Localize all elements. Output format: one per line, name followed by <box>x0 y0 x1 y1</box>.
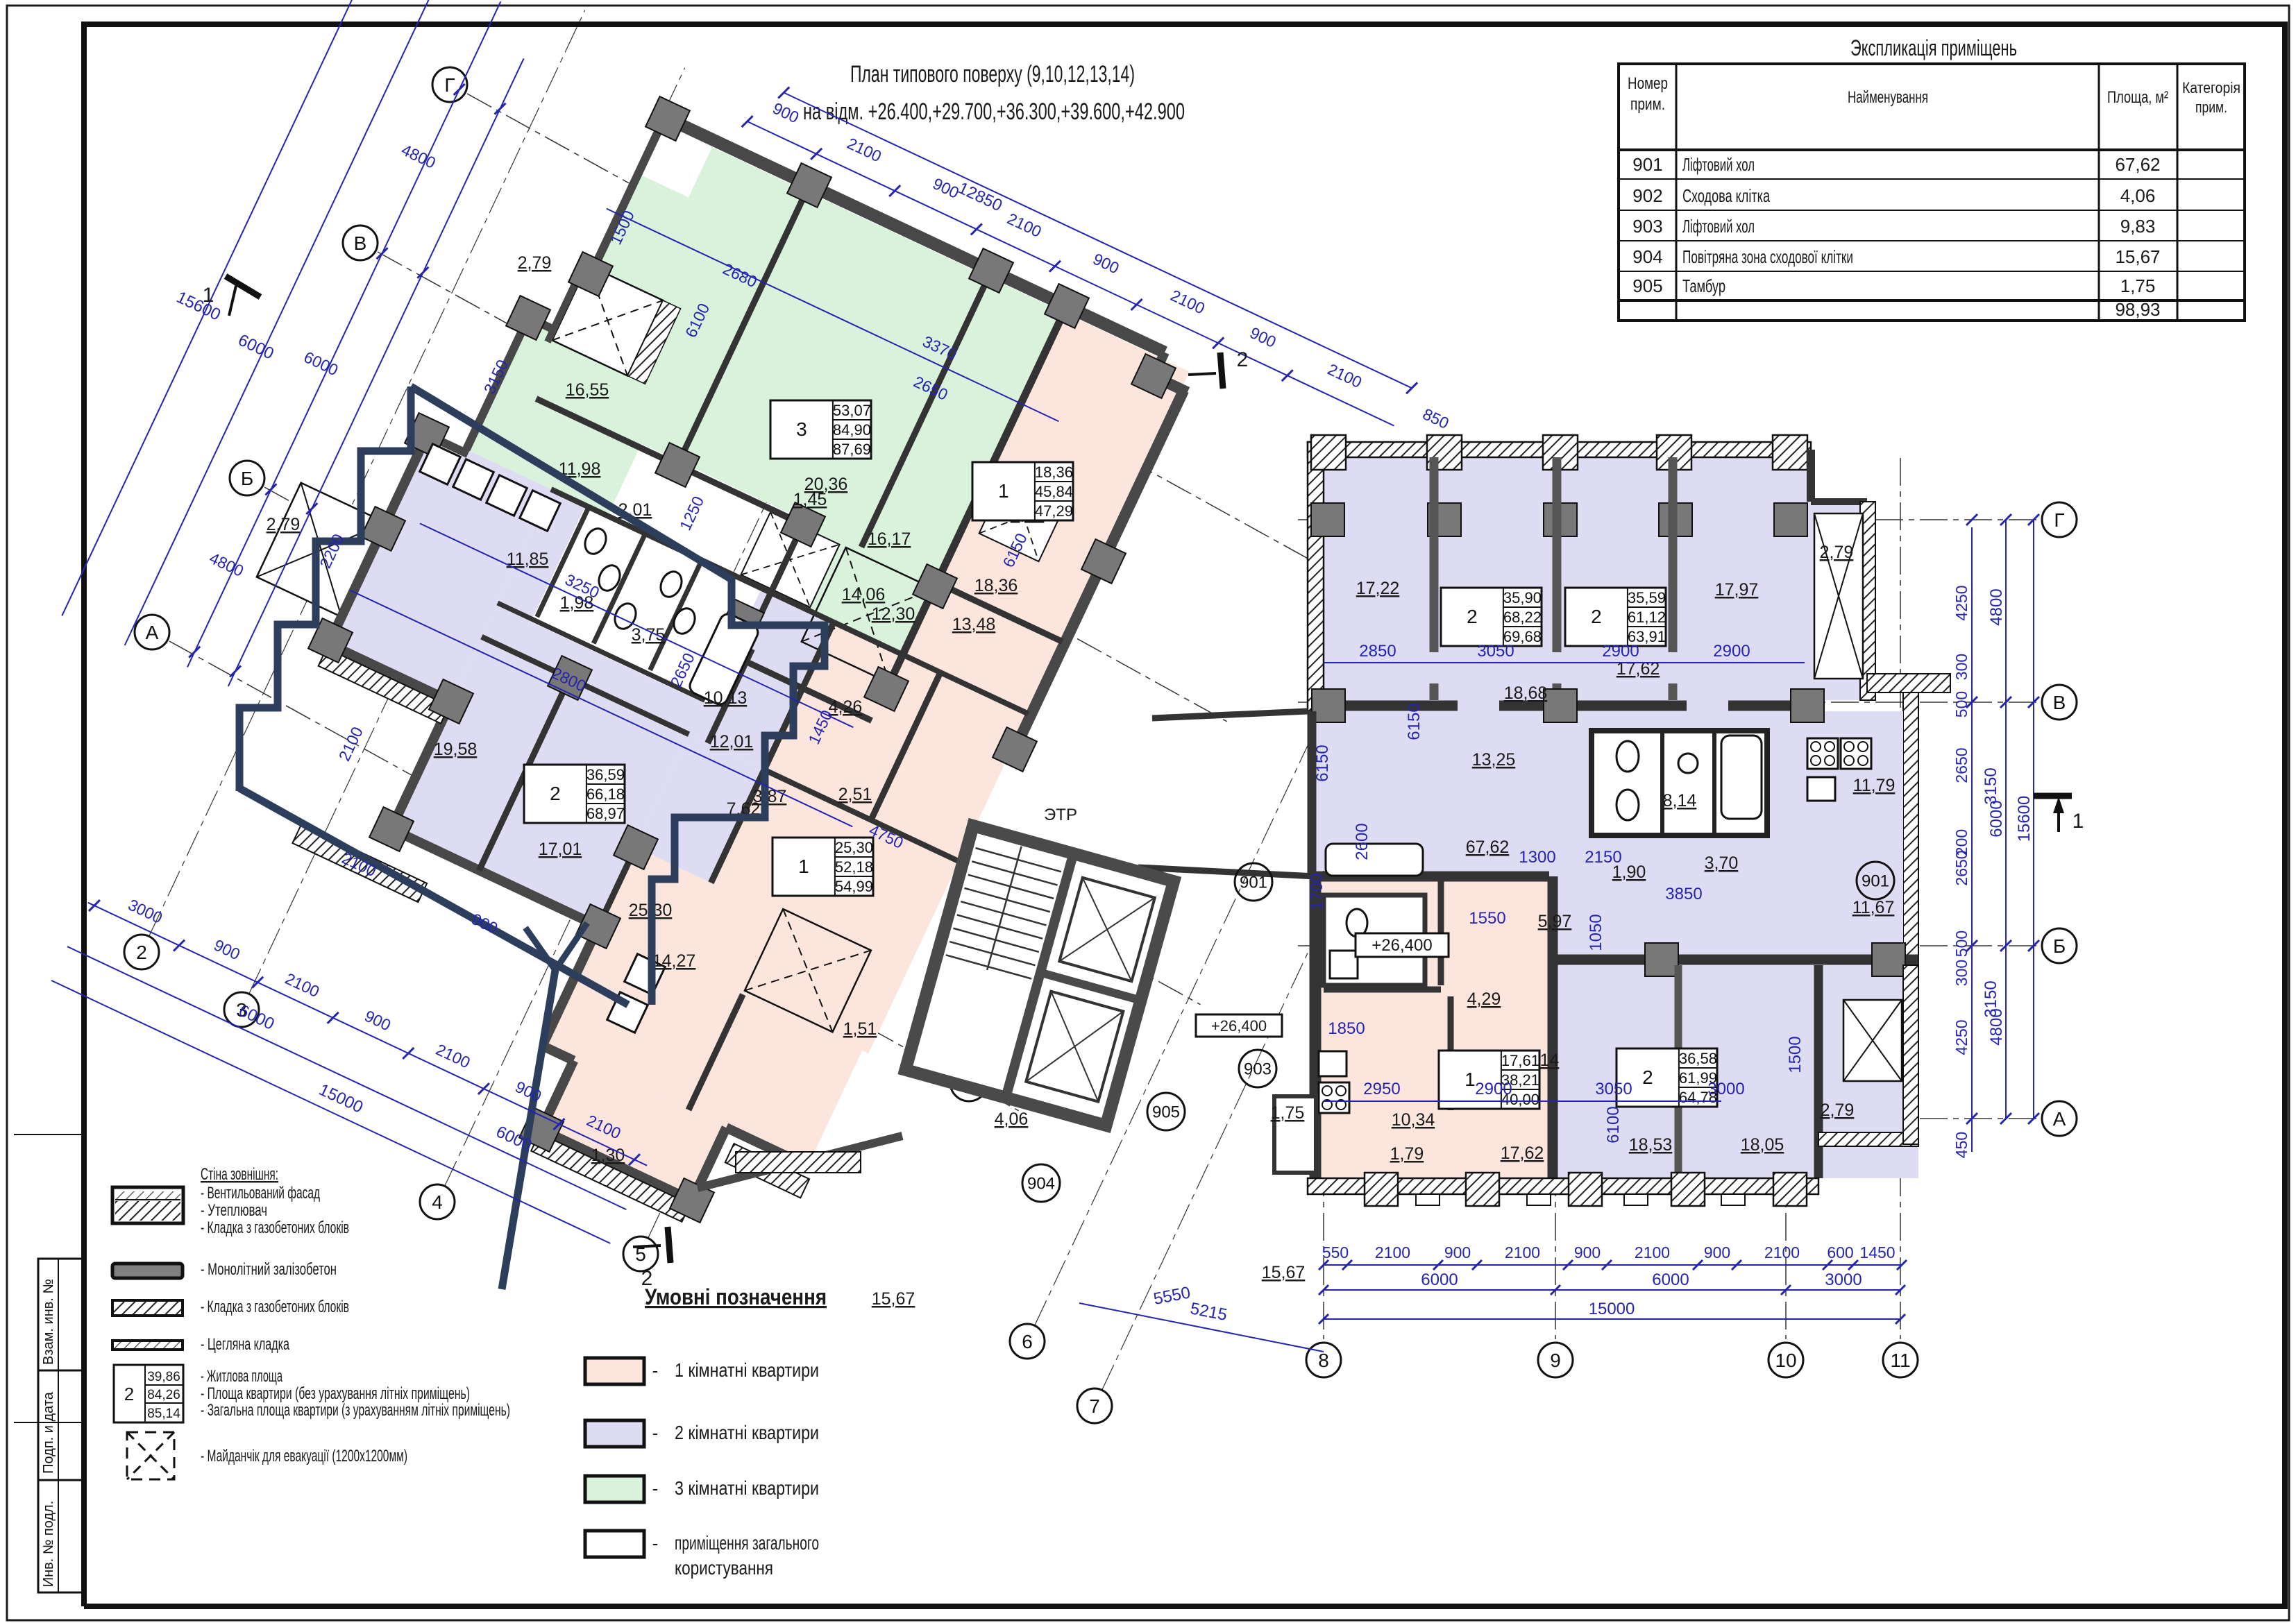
svg-text:4250: 4250 <box>1952 585 1970 620</box>
svg-text:4,29: 4,29 <box>1467 989 1501 1009</box>
svg-text:2900: 2900 <box>1475 1080 1512 1098</box>
svg-text:2: 2 <box>124 1384 134 1404</box>
svg-text:900: 900 <box>1444 1243 1471 1261</box>
svg-text:1700: 1700 <box>1308 873 1326 910</box>
svg-text:приміщення загального: приміщення загального <box>675 1532 819 1554</box>
svg-text:2900: 2900 <box>1602 642 1639 661</box>
svg-text:18,68: 18,68 <box>1504 683 1548 703</box>
svg-text:3000: 3000 <box>1707 1080 1744 1098</box>
svg-text:16,17: 16,17 <box>868 529 911 549</box>
svg-text:2100: 2100 <box>1505 1243 1540 1261</box>
svg-text:+26,400: +26,400 <box>1371 936 1432 955</box>
svg-text:- Загальна площа квартири (з у: - Загальна площа квартири (з урахуванням… <box>201 1401 510 1420</box>
svg-text:14,27: 14,27 <box>652 951 696 971</box>
svg-text:4250: 4250 <box>1952 1019 1970 1055</box>
svg-text:15,67: 15,67 <box>872 1289 915 1309</box>
svg-text:1,51: 1,51 <box>843 1019 877 1039</box>
svg-text:Номер: Номер <box>1628 74 1668 93</box>
svg-text:900: 900 <box>1574 1243 1601 1261</box>
svg-text:25,30: 25,30 <box>835 839 873 856</box>
svg-text:67,62: 67,62 <box>1466 838 1510 857</box>
svg-text:Площа, м²: Площа, м² <box>2107 88 2168 107</box>
svg-text:2100: 2100 <box>1375 1243 1410 1261</box>
svg-text:901: 901 <box>1240 873 1267 892</box>
svg-text:Б: Б <box>241 468 253 489</box>
svg-text:17,62: 17,62 <box>1501 1144 1544 1163</box>
svg-text:2100: 2100 <box>1635 1243 1670 1261</box>
svg-text:10: 10 <box>1775 1350 1796 1371</box>
svg-text:900: 900 <box>1704 1243 1730 1261</box>
svg-text:3850: 3850 <box>1665 885 1702 903</box>
svg-text:Категорія: Категорія <box>2182 79 2240 96</box>
svg-text:2150: 2150 <box>1585 848 1621 867</box>
svg-text:68,97: 68,97 <box>586 805 625 822</box>
svg-text:500: 500 <box>1952 691 1970 717</box>
svg-text:1: 1 <box>1464 1069 1476 1090</box>
svg-text:17,61: 17,61 <box>1501 1052 1539 1069</box>
svg-text:+26,400: +26,400 <box>1211 1017 1267 1035</box>
svg-text:-: - <box>652 1360 659 1381</box>
svg-text:Повітряна зона сходової клітки: Повітряна зона сходової клітки <box>1682 246 1853 267</box>
svg-text:10,13: 10,13 <box>704 688 748 708</box>
svg-text:17,97: 17,97 <box>1715 580 1759 600</box>
svg-text:14,06: 14,06 <box>842 585 886 604</box>
svg-text:прим.: прим. <box>2195 99 2227 116</box>
svg-text:7: 7 <box>1089 1395 1100 1417</box>
svg-text:2,79: 2,79 <box>267 515 301 534</box>
svg-text:1550: 1550 <box>1469 909 1505 928</box>
svg-text:2900: 2900 <box>1713 642 1750 661</box>
svg-text:12,30: 12,30 <box>872 604 915 624</box>
svg-text:901: 901 <box>1862 872 1889 890</box>
svg-text:36,59: 36,59 <box>586 766 625 783</box>
svg-text:Найменування: Найменування <box>1848 88 1928 107</box>
svg-text:13,25: 13,25 <box>1472 750 1516 770</box>
svg-text:- Площа квартири (без урахуван: - Площа квартири (без урахування літніх … <box>201 1384 470 1403</box>
svg-text:3050: 3050 <box>1477 642 1514 661</box>
svg-text:користування: користування <box>675 1557 773 1579</box>
svg-text:3,70: 3,70 <box>1705 853 1739 873</box>
svg-text:87,69: 87,69 <box>833 441 871 458</box>
svg-text:6000: 6000 <box>1652 1271 1689 1289</box>
svg-text:18,53: 18,53 <box>1629 1135 1673 1155</box>
svg-text:84,26: 84,26 <box>147 1388 180 1402</box>
svg-text:-: - <box>652 1478 659 1499</box>
svg-text:Взам. инв. №: Взам. инв. № <box>41 1279 56 1365</box>
svg-text:- Монолітний залізобетон: - Монолітний залізобетон <box>201 1260 337 1279</box>
svg-text:4800: 4800 <box>1987 588 2006 625</box>
svg-text:500: 500 <box>1952 931 1970 957</box>
svg-text:903: 903 <box>1244 1060 1272 1078</box>
svg-text:35,59: 35,59 <box>1628 589 1666 606</box>
svg-text:Стіна зовнішня:: Стіна зовнішня: <box>201 1165 278 1184</box>
svg-text:Подп. и дата: Подп. и дата <box>41 1391 56 1474</box>
svg-text:11: 11 <box>1890 1350 1910 1371</box>
svg-text:36,58: 36,58 <box>1679 1050 1717 1067</box>
svg-text:98,93: 98,93 <box>2115 299 2160 320</box>
svg-text:Г: Г <box>444 74 455 96</box>
svg-text:А: А <box>146 622 159 643</box>
svg-text:84,90: 84,90 <box>833 421 871 439</box>
svg-text:1500: 1500 <box>1786 1036 1805 1073</box>
svg-text:2850: 2850 <box>1359 642 1396 661</box>
svg-text:Б: Б <box>2053 935 2066 957</box>
svg-text:54,99: 54,99 <box>835 878 873 895</box>
svg-text:18,36: 18,36 <box>974 576 1018 595</box>
svg-text:3 кімнатні квартири: 3 кімнатні квартири <box>675 1477 819 1499</box>
svg-text:903: 903 <box>1632 216 1662 237</box>
svg-text:45,84: 45,84 <box>1035 483 1073 500</box>
svg-text:2,51: 2,51 <box>838 785 872 804</box>
svg-text:1,79: 1,79 <box>1390 1144 1424 1164</box>
svg-text:2: 2 <box>1642 1067 1653 1088</box>
svg-text:1850: 1850 <box>1328 1019 1365 1038</box>
svg-text:-: - <box>652 1533 659 1554</box>
svg-text:11,85: 11,85 <box>507 550 549 569</box>
svg-text:1300: 1300 <box>1519 848 1555 867</box>
svg-text:35,90: 35,90 <box>1503 589 1542 606</box>
svg-text:- Цегляна кладка: - Цегляна кладка <box>201 1335 289 1354</box>
svg-text:1 кімнатні квартири: 1 кімнатні квартири <box>675 1359 819 1381</box>
svg-text:1,75: 1,75 <box>1271 1103 1305 1123</box>
svg-text:- Майданчік для евакуації (120: - Майданчік для евакуації (1200х1200мм) <box>201 1447 407 1465</box>
svg-text:2600: 2600 <box>1353 823 1371 860</box>
svg-text:13,48: 13,48 <box>952 615 996 634</box>
svg-text:Умовні позначення: Умовні позначення <box>645 1284 827 1309</box>
svg-text:4,06: 4,06 <box>995 1110 1029 1129</box>
svg-text:9: 9 <box>1550 1350 1561 1371</box>
svg-text:68,22: 68,22 <box>1503 609 1542 626</box>
svg-text:19,58: 19,58 <box>434 740 478 759</box>
svg-text:300: 300 <box>1952 960 1970 986</box>
svg-text:15600: 15600 <box>2015 796 2034 842</box>
svg-text:2,79: 2,79 <box>518 253 552 273</box>
svg-text:15,67: 15,67 <box>2115 246 2160 267</box>
svg-text:4800: 4800 <box>1987 1008 2006 1045</box>
svg-text:17,01: 17,01 <box>539 840 582 859</box>
svg-text:600: 600 <box>1827 1243 1853 1261</box>
svg-text:2,79: 2,79 <box>1820 543 1854 562</box>
svg-text:9,83: 9,83 <box>2120 216 2156 237</box>
svg-text:10,34: 10,34 <box>1392 1110 1435 1130</box>
svg-text:2: 2 <box>641 1267 653 1290</box>
svg-text:Ліфтовий хол: Ліфтовий хол <box>1682 216 1755 237</box>
svg-text:2: 2 <box>550 783 561 804</box>
svg-text:2950: 2950 <box>1363 1080 1400 1098</box>
svg-text:В: В <box>354 232 367 254</box>
svg-text:2: 2 <box>1591 606 1602 627</box>
svg-text:450: 450 <box>1952 1132 1970 1158</box>
svg-text:8: 8 <box>1318 1350 1329 1371</box>
svg-text:3150: 3150 <box>1982 767 2000 804</box>
svg-text:на відм. +26.400,+29.700,+36.3: на відм. +26.400,+29.700,+36.300,+39.600… <box>803 99 1185 125</box>
svg-text:1: 1 <box>998 480 1009 502</box>
svg-text:Ліфтовий хол: Ліфтовий хол <box>1682 154 1755 175</box>
svg-text:2 кімнатні квартири: 2 кімнатні квартири <box>675 1422 819 1443</box>
svg-text:Тамбур: Тамбур <box>1682 275 1725 296</box>
svg-text:901: 901 <box>1632 154 1662 175</box>
svg-text:300: 300 <box>1952 654 1970 680</box>
svg-text:6150: 6150 <box>1313 745 1332 781</box>
svg-text:15000: 15000 <box>1589 1300 1635 1318</box>
svg-text:- Кладка з газобетоних блоків: - Кладка з газобетоних блоків <box>201 1298 349 1316</box>
svg-text:3050: 3050 <box>1595 1080 1632 1098</box>
svg-text:2: 2 <box>1237 348 1249 371</box>
svg-text:550: 550 <box>1322 1243 1349 1261</box>
svg-text:- Вентильований фасад: - Вентильований фасад <box>201 1184 320 1203</box>
svg-text:1,30: 1,30 <box>591 1146 625 1165</box>
svg-text:2100: 2100 <box>1764 1243 1800 1261</box>
svg-text:1,75: 1,75 <box>2120 275 2156 296</box>
svg-text:1: 1 <box>2073 810 2084 833</box>
svg-text:прим.: прим. <box>1630 95 1665 114</box>
svg-text:2650: 2650 <box>1952 747 1970 783</box>
svg-text:1450: 1450 <box>1859 1243 1895 1261</box>
svg-text:4,06: 4,06 <box>2120 185 2156 206</box>
svg-text:66,18: 66,18 <box>586 785 625 803</box>
svg-text:3,87: 3,87 <box>753 787 787 806</box>
svg-text:2,79: 2,79 <box>1821 1101 1855 1120</box>
svg-text:6000: 6000 <box>1987 800 2006 837</box>
svg-text:17,22: 17,22 <box>1356 579 1400 598</box>
svg-text:39,86: 39,86 <box>147 1370 180 1384</box>
svg-text:План типового поверху (9,10,12: План типового поверху (9,10,12,13,14) <box>850 61 1135 87</box>
svg-text:905: 905 <box>1632 275 1662 296</box>
svg-text:1,45: 1,45 <box>793 490 827 509</box>
svg-text:61,12: 61,12 <box>1628 609 1666 626</box>
svg-text:8,14: 8,14 <box>1663 791 1697 810</box>
svg-text:В: В <box>2053 692 2066 713</box>
svg-text:16,55: 16,55 <box>566 380 609 400</box>
svg-text:Экспликація приміщень: Экспликація приміщень <box>1850 35 2017 60</box>
svg-text:12,01: 12,01 <box>710 732 754 751</box>
svg-text:Сходова клітка: Сходова клітка <box>1682 185 1770 206</box>
svg-text:2: 2 <box>136 942 147 963</box>
svg-text:- Утеплювач: - Утеплювач <box>201 1201 267 1220</box>
svg-text:18,05: 18,05 <box>1741 1135 1784 1155</box>
svg-text:11,67: 11,67 <box>1852 898 1895 917</box>
svg-text:905: 905 <box>1152 1103 1180 1121</box>
svg-text:85,14: 85,14 <box>147 1407 180 1421</box>
svg-text:5,97: 5,97 <box>1538 912 1572 931</box>
svg-text:52,18: 52,18 <box>835 858 873 876</box>
svg-text:53,07: 53,07 <box>833 402 871 419</box>
svg-text:904: 904 <box>1027 1174 1055 1193</box>
svg-text:2650: 2650 <box>1952 850 1970 885</box>
svg-text:18,36: 18,36 <box>1035 464 1073 481</box>
svg-text:2: 2 <box>1467 606 1478 627</box>
svg-text:1: 1 <box>203 284 214 307</box>
svg-text:6150: 6150 <box>1405 703 1424 740</box>
svg-text:ЭТР: ЭТР <box>1044 806 1077 824</box>
svg-text:904: 904 <box>1632 246 1662 267</box>
svg-text:-: - <box>652 1422 659 1443</box>
svg-text:67,62: 67,62 <box>2115 154 2160 175</box>
svg-text:902: 902 <box>1632 185 1662 206</box>
svg-text:15,67: 15,67 <box>1262 1263 1306 1282</box>
svg-text:6000: 6000 <box>1421 1271 1458 1289</box>
svg-text:3,75: 3,75 <box>632 625 666 645</box>
svg-text:- Кладка з газобетоних блоків: - Кладка з газобетоних блоків <box>201 1218 349 1237</box>
svg-text:- Житлова площа: - Житлова площа <box>201 1367 282 1386</box>
svg-text:3000: 3000 <box>1825 1271 1862 1289</box>
svg-text:А: А <box>2053 1108 2066 1130</box>
svg-text:1: 1 <box>798 856 809 877</box>
svg-text:47,29: 47,29 <box>1035 502 1073 520</box>
svg-text:6100: 6100 <box>1604 1106 1623 1143</box>
svg-text:3: 3 <box>796 418 807 440</box>
svg-text:4: 4 <box>432 1191 443 1213</box>
svg-text:11,79: 11,79 <box>1853 776 1896 795</box>
svg-text:Г: Г <box>2054 509 2064 531</box>
svg-text:6: 6 <box>1022 1331 1033 1352</box>
svg-text:1050: 1050 <box>1587 914 1605 951</box>
svg-text:Инв. № подл.: Инв. № подл. <box>41 1501 56 1588</box>
